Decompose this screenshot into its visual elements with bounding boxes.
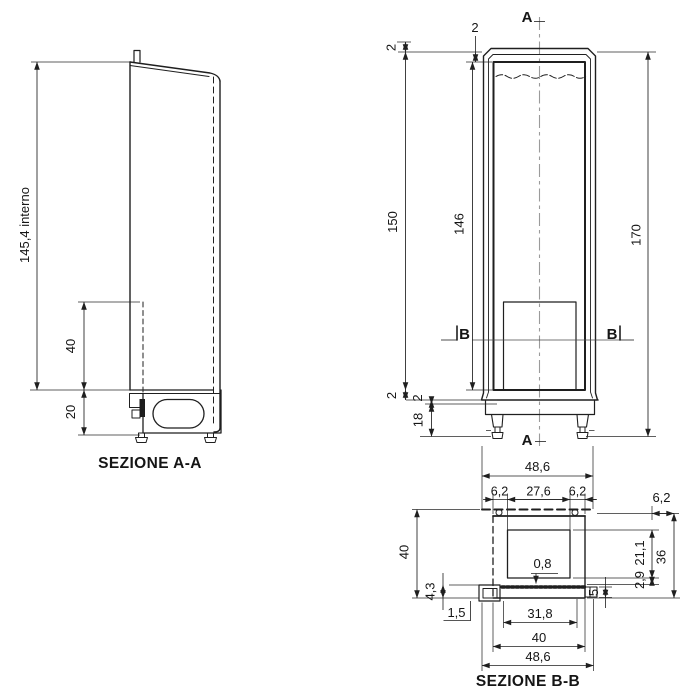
section-marker-a-bottom: A [522,432,533,449]
dim-inner-width: 27,6 [526,485,550,499]
dim-opening-width: 31,8 [527,606,552,621]
right-foot [577,433,588,439]
section-bb-title: SEZIONE B-B [476,673,580,690]
section-aa-title: SEZIONE A-A [98,455,202,472]
dim-overall-height: 170 [629,224,644,246]
dim-drain-height: 4,3 [423,582,438,600]
dim-plinth-height: 18 [411,413,426,427]
right-foot-stem [208,433,214,438]
dim-depth: 40 [397,545,412,559]
left-foot [492,433,503,439]
left-leg [492,415,504,428]
dim-overall-width-bottom: 48,6 [525,649,550,664]
dim-left-wall: 6,2 [491,485,508,499]
drain-fitting-inner [483,589,497,599]
dim-overall-width-top: 48,6 [525,459,550,474]
dim-panel-thickness: 0,8 [533,556,551,571]
dim-gap: 2,9 [632,571,647,589]
dim-flange-right: 6,2 [652,490,670,505]
door-bottom-detail [132,410,140,418]
compressor-oval [153,400,204,429]
dim-frame-height: 150 [385,211,400,233]
dim-top-wall: 2 [384,44,399,51]
dim-overall-depth: 36 [654,550,669,564]
dim-lip: 2 [410,394,425,401]
dim-inner-depth: 21,1 [632,540,647,565]
front-view: 2 150 2 146 2 2 18 170 A A B B [384,9,657,509]
top-fitting [134,51,140,63]
dim-drain-wall: 1,5 [447,605,465,620]
dim-compartment-height: 40 [63,339,78,353]
right-foot-pad [205,438,217,443]
section-marker-b-right: B [607,326,618,343]
dim-top-frame: 2 [471,20,478,35]
back-panel-wavy-edge [496,75,586,79]
door-outer-edge [214,81,220,432]
left-foot-screw [495,427,500,433]
dim-base-height: 20 [63,405,78,419]
right-foot-screw [580,427,585,433]
dim-right-wall: 6,2 [569,485,586,499]
section-bb-view: 48,6 6,2 27,6 6,2 6,2 21,1 2,9 36 5 [397,459,681,690]
section-marker-b-left: B [459,326,470,343]
section-aa-view: 145,4 interno 40 20 SEZIONE A-A [17,51,221,473]
dim-bottom-wall: 2 [384,392,399,399]
technical-drawing: 145,4 interno 40 20 SEZIONE A-A 2 150 [0,0,700,700]
section-marker-a-top: A [522,9,533,26]
technical-drawing-page: 145,4 interno 40 20 SEZIONE A-A 2 150 [0,0,700,700]
right-leg [577,415,589,428]
hinge-block [140,399,146,417]
left-foot-pad [136,438,148,443]
base-compartment [143,390,221,433]
dim-interior-height: 145,4 interno [17,187,32,263]
dim-tab-height: 5 [586,589,601,596]
dim-opening-height: 146 [452,213,467,235]
dim-body-width: 40 [532,630,546,645]
